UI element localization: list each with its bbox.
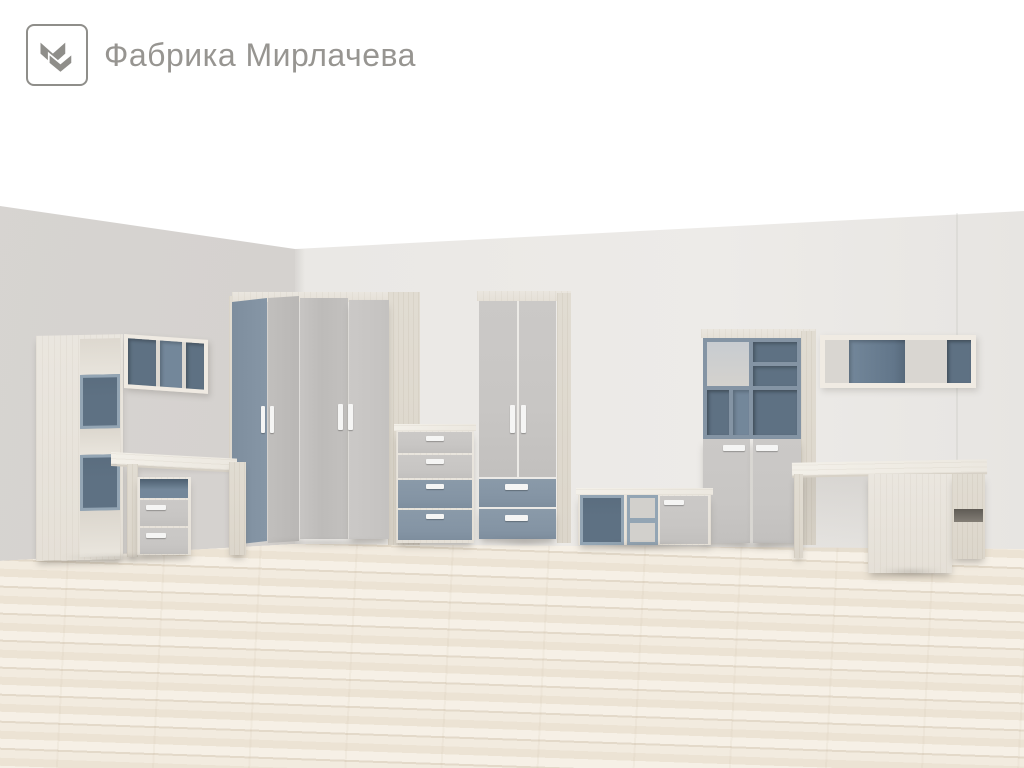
wardrobe-door bbox=[519, 301, 556, 477]
drawer-handle bbox=[146, 505, 166, 510]
drawer-handle bbox=[426, 514, 444, 519]
wardrobe-door-handle bbox=[270, 406, 274, 433]
drawer-handle bbox=[426, 459, 444, 464]
desk-side-panel bbox=[952, 474, 985, 559]
shelf-cell-blue bbox=[849, 340, 905, 383]
wardrobe-door-handle bbox=[510, 405, 515, 433]
contact-shadow bbox=[866, 570, 956, 579]
wardrobe-door-handle bbox=[338, 404, 343, 430]
drawer-pedestal bbox=[137, 477, 191, 555]
bench-door-handle bbox=[664, 500, 684, 505]
shelf-cell-light bbox=[707, 342, 749, 386]
wardrobe-door bbox=[479, 301, 517, 477]
drawer-handle bbox=[426, 484, 444, 489]
contact-shadow bbox=[232, 541, 422, 551]
wardrobe-door-handle bbox=[521, 405, 526, 433]
cabinet-open-section bbox=[703, 338, 801, 439]
wall-shelf-left bbox=[124, 334, 208, 394]
pedestal-open-niche bbox=[140, 479, 188, 498]
shelf-cell-blue bbox=[947, 340, 971, 383]
pedestal-drawer bbox=[140, 528, 188, 554]
bench-cell bbox=[627, 495, 658, 521]
desk-right-leg bbox=[229, 462, 246, 555]
logo-mark-icon bbox=[26, 24, 88, 86]
drawer-handle bbox=[426, 436, 444, 441]
brand-logo: Фабрика Мирлачева bbox=[26, 24, 416, 86]
desk-side-niche bbox=[954, 509, 983, 522]
wardrobe-drawer-blue bbox=[479, 509, 556, 539]
shelf-cell-blue bbox=[753, 366, 797, 386]
cabinet-top bbox=[701, 329, 816, 338]
shelf-cell-blue bbox=[128, 338, 156, 386]
contact-shadow bbox=[32, 556, 232, 566]
drawer-handle bbox=[505, 484, 528, 490]
wall-shelf-right bbox=[820, 335, 976, 388]
bench-cell-blue bbox=[580, 495, 624, 545]
shelf-cell-blue bbox=[80, 374, 120, 429]
pedestal-drawer bbox=[140, 500, 188, 526]
shelf-cell-blue bbox=[160, 341, 182, 389]
shelf-cell-light bbox=[80, 338, 120, 375]
shelf-cell-blue bbox=[753, 390, 797, 435]
wardrobe-door-handle bbox=[261, 406, 265, 433]
desk-left-leg bbox=[794, 474, 803, 558]
corner-wardrobe-gray-door-3 bbox=[349, 300, 389, 539]
brand-name: Фабрика Мирлачева bbox=[104, 37, 416, 74]
contact-shadow bbox=[477, 540, 572, 549]
bench-cell bbox=[627, 520, 658, 545]
shelf-cell-blue bbox=[186, 342, 204, 389]
desk-return-panel bbox=[868, 474, 952, 573]
wardrobe-door-handle bbox=[348, 404, 353, 430]
under-desk-shadow bbox=[803, 474, 869, 552]
bench-body bbox=[578, 495, 711, 545]
tall-shelf-body bbox=[36, 334, 123, 561]
chest-body bbox=[396, 431, 474, 543]
bench-top bbox=[576, 488, 713, 495]
contact-shadow bbox=[576, 544, 713, 552]
shelf-cell-blue bbox=[707, 390, 729, 435]
double-chevron-m-icon bbox=[35, 33, 79, 77]
shelf-cell-blue bbox=[753, 342, 797, 362]
shelf-cell-blue bbox=[733, 390, 749, 435]
drawer-handle bbox=[505, 515, 528, 521]
shelf-cell-light bbox=[80, 428, 120, 455]
tall-shelf-opening bbox=[80, 338, 120, 557]
shelf-cell-light bbox=[80, 510, 120, 557]
cabinet-door-handle bbox=[723, 445, 745, 451]
chest-top bbox=[394, 424, 476, 431]
wardrobe-side-panel bbox=[557, 293, 571, 543]
drawer-handle bbox=[146, 533, 166, 538]
cabinet-door-handle bbox=[756, 445, 778, 451]
